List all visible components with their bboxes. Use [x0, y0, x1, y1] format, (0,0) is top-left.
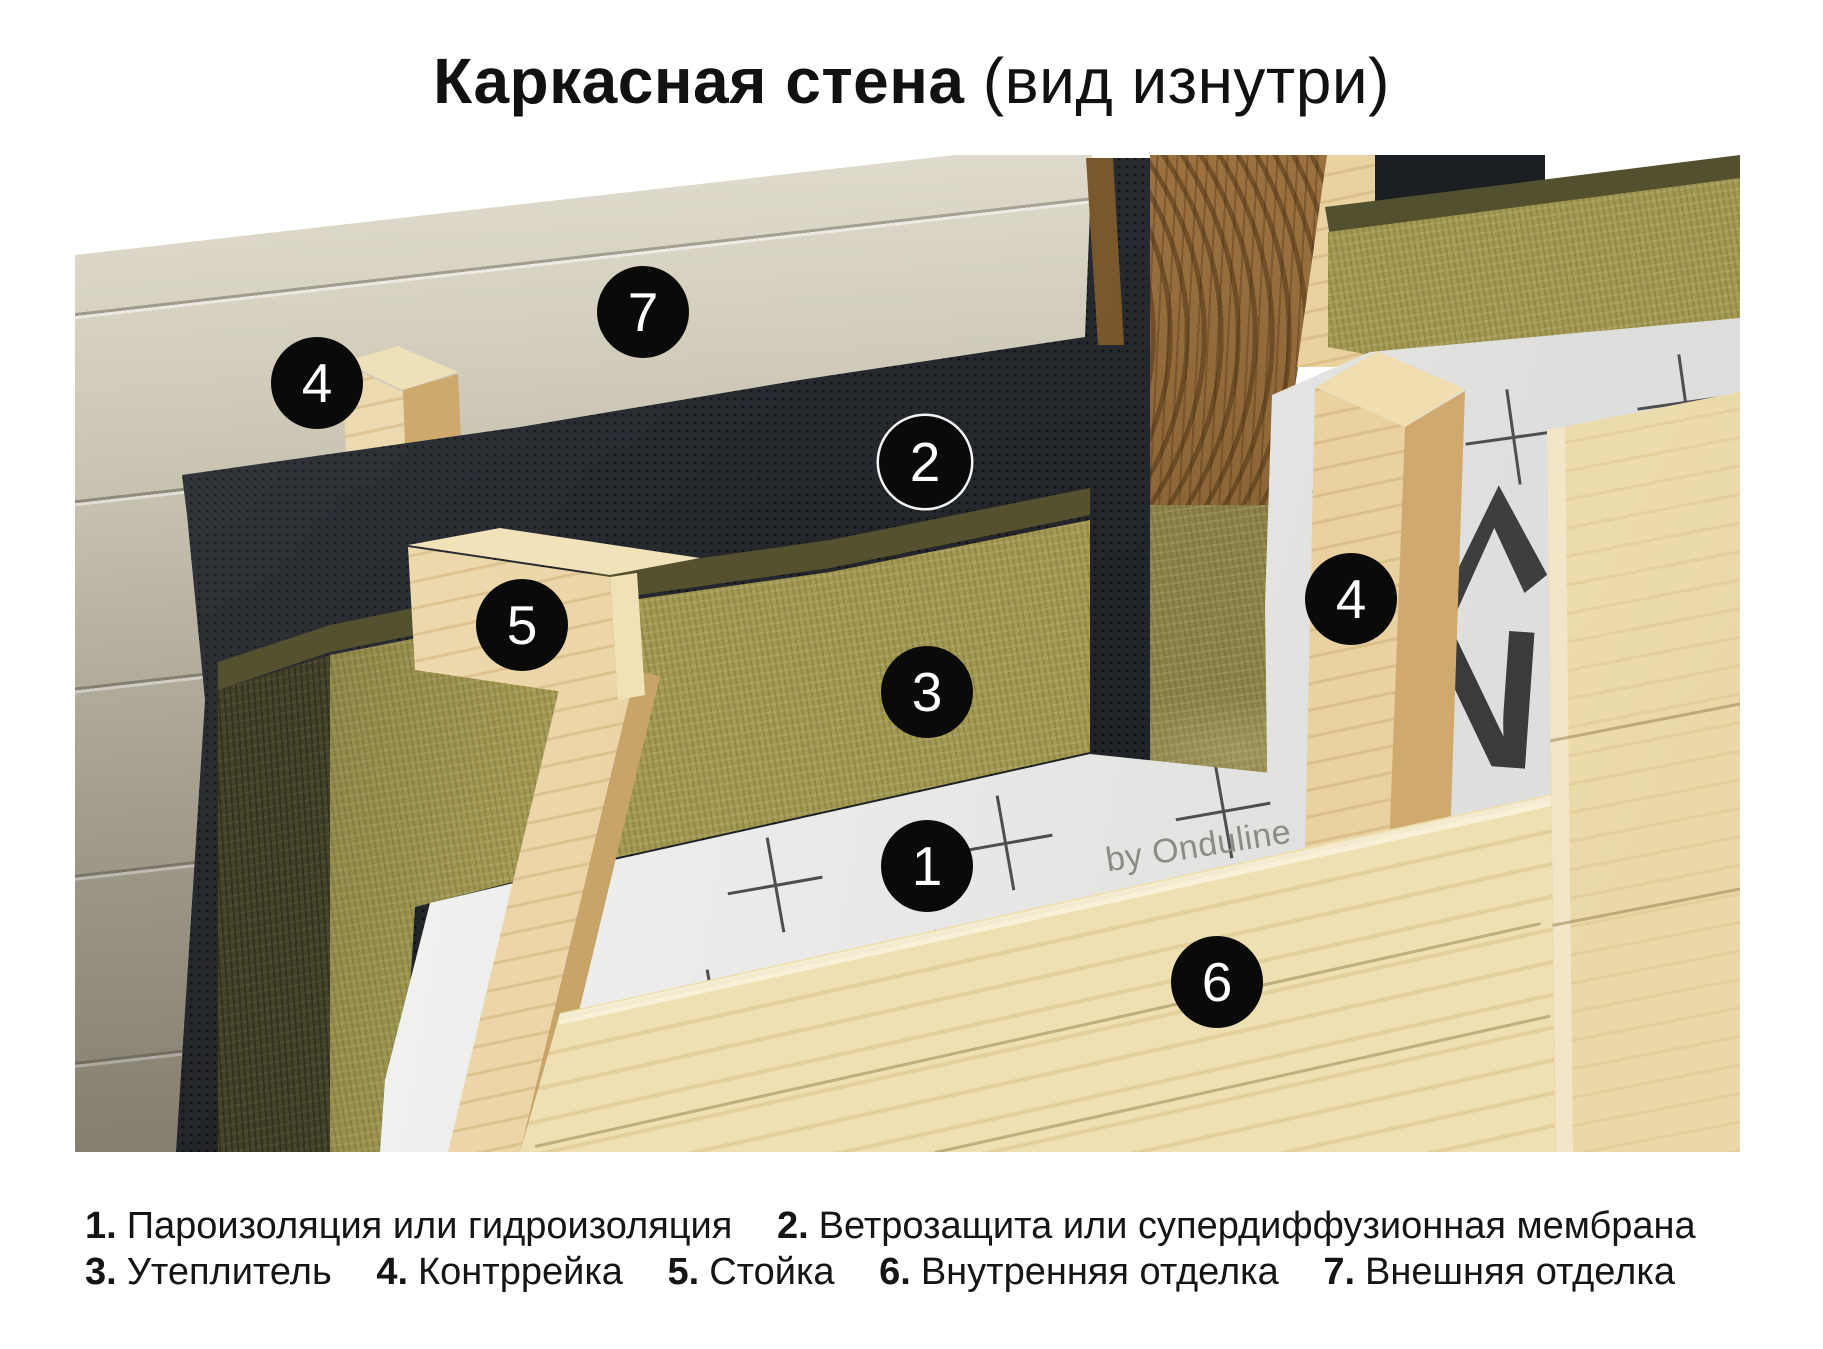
legend-item-5-label: Стойка: [709, 1251, 834, 1293]
marker-1: 1: [881, 820, 973, 912]
legend-row-2: 3.Утеплитель 4.Контррейка 5.Стойка 6.Вну…: [85, 1249, 1730, 1295]
page: Каркасная стена (вид изнутри): [0, 0, 1823, 1349]
marker-6-label: 6: [1202, 950, 1233, 1014]
board-seam: [1547, 887, 1740, 928]
legend-item-6-label: Внутренняя отделка: [921, 1251, 1279, 1293]
marker-2: 2: [879, 416, 971, 508]
board-seam: [1547, 702, 1740, 743]
marker-5-label: 5: [507, 593, 538, 657]
legend-item-6: 6.Внутренняя отделка: [879, 1251, 1279, 1293]
grid-cross-mark: [719, 829, 830, 940]
legend-item-2-num: 2.: [777, 1205, 809, 1247]
marker-7-label: 7: [628, 280, 659, 344]
legend-item-3: 3.Утеплитель: [85, 1251, 332, 1293]
legend-item-4-num: 4.: [376, 1251, 408, 1293]
legend-item-5-num: 5.: [667, 1251, 699, 1293]
legend: 1.Пароизоляция или гидроизоляция 2.Ветро…: [85, 1203, 1730, 1295]
wall-3d-illustration: ND by Onduline: [75, 155, 1740, 1152]
marker-3-label: 3: [912, 660, 943, 724]
legend-item-7: 7.Внешняя отделка: [1323, 1251, 1675, 1293]
legend-row-1: 1.Пароизоляция или гидроизоляция 2.Ветро…: [85, 1203, 1730, 1249]
legend-item-4-label: Контррейка: [418, 1251, 623, 1293]
legend-item-3-label: Утеплитель: [127, 1251, 332, 1293]
legend-item-4: 4.Контррейка: [376, 1251, 623, 1293]
legend-item-2: 2.Ветрозащита или супердиффузионная мемб…: [777, 1205, 1696, 1247]
legend-item-1-num: 1.: [85, 1205, 117, 1247]
marker-2-label: 2: [910, 430, 941, 494]
legend-item-1: 1.Пароизоляция или гидроизоляция: [85, 1205, 732, 1247]
marker-1-label: 1: [912, 834, 943, 898]
marker-3: 3: [881, 646, 973, 738]
legend-item-2-label: Ветрозащита или супердиффузионная мембра…: [819, 1205, 1696, 1247]
legend-item-7-num: 7.: [1323, 1251, 1355, 1293]
marker-7: 7: [597, 266, 689, 358]
marker-6: 6: [1171, 936, 1263, 1028]
legend-item-7-label: Внешняя отделка: [1365, 1251, 1675, 1293]
page-title-main: Каркасная стена: [433, 45, 964, 117]
marker-5: 5: [476, 579, 568, 671]
legend-item-1-label: Пароизоляция или гидроизоляция: [127, 1205, 733, 1247]
page-title: Каркасная стена (вид изнутри): [0, 44, 1823, 118]
marker-4-left-label: 4: [302, 351, 333, 415]
page-title-suffix: (вид изнутри): [983, 45, 1390, 117]
legend-item-5: 5.Стойка: [667, 1251, 834, 1293]
marker-4-right-label: 4: [1336, 567, 1367, 631]
marker-4-left: 4: [271, 337, 363, 429]
marker-4-right: 4: [1305, 553, 1397, 645]
legend-item-6-num: 6.: [879, 1251, 911, 1293]
legend-item-3-num: 3.: [85, 1251, 117, 1293]
